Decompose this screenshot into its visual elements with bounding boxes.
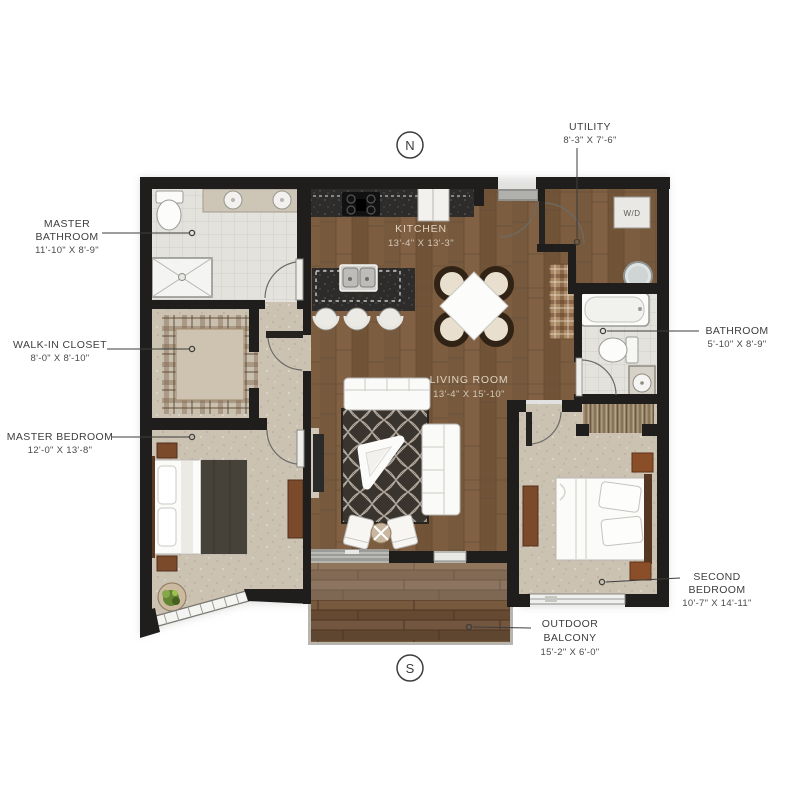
svg-text:MASTER BEDROOM: MASTER BEDROOM xyxy=(7,431,114,443)
svg-text:LIVING ROOM: LIVING ROOM xyxy=(430,374,509,386)
svg-text:8'-0" X 8'-10": 8'-0" X 8'-10" xyxy=(31,353,90,364)
svg-text:MASTER: MASTER xyxy=(44,218,90,230)
svg-text:15'-2" X 6'-0": 15'-2" X 6'-0" xyxy=(541,647,600,658)
svg-text:S: S xyxy=(406,661,415,676)
svg-text:BEDROOM: BEDROOM xyxy=(688,584,745,596)
svg-text:BALCONY: BALCONY xyxy=(544,632,597,644)
svg-text:UTILITY: UTILITY xyxy=(569,121,611,133)
svg-text:KITCHEN: KITCHEN xyxy=(395,223,447,235)
svg-text:WALK-IN CLOSET: WALK-IN CLOSET xyxy=(13,339,107,351)
svg-text:13'-4" X 15'-10": 13'-4" X 15'-10" xyxy=(433,389,505,400)
svg-text:5'-10" X 8'-9": 5'-10" X 8'-9" xyxy=(708,339,767,350)
svg-text:SECOND: SECOND xyxy=(693,571,740,583)
svg-text:10'-7" X 14'-11": 10'-7" X 14'-11" xyxy=(682,598,751,609)
svg-text:OUTDOOR: OUTDOOR xyxy=(542,618,598,630)
svg-text:12'-0" X 13'-8": 12'-0" X 13'-8" xyxy=(28,445,93,456)
svg-text:BATHROOM: BATHROOM xyxy=(35,231,98,243)
svg-text:BATHROOM: BATHROOM xyxy=(705,325,768,337)
svg-text:8'-3" X 7'-6": 8'-3" X 7'-6" xyxy=(563,135,616,146)
svg-text:N: N xyxy=(405,138,414,153)
svg-text:W/D: W/D xyxy=(623,209,640,218)
svg-text:13'-4" X 13'-3": 13'-4" X 13'-3" xyxy=(388,238,454,249)
svg-text:11'-10" X 8'-9": 11'-10" X 8'-9" xyxy=(35,245,99,256)
